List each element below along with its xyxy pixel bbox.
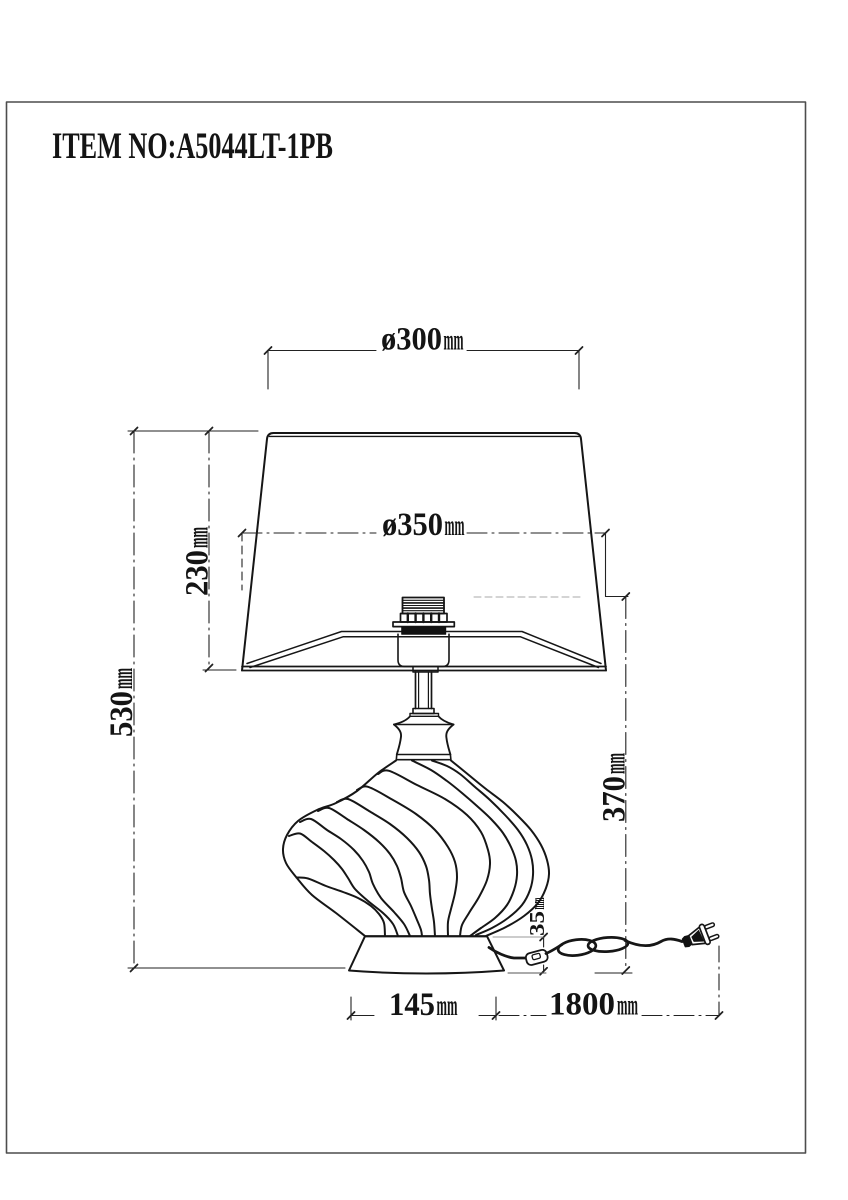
svg-text:530: 530: [104, 691, 140, 737]
svg-text:370: 370: [597, 776, 633, 822]
svg-text:mm: mm: [106, 668, 139, 689]
svg-text:ITEM NO:A5044LT-1PB: ITEM NO:A5044LT-1PB: [52, 126, 333, 167]
svg-text:230: 230: [180, 550, 216, 596]
svg-text:mm: mm: [617, 989, 638, 1022]
svg-text:ø350: ø350: [382, 507, 443, 543]
svg-text:mm: mm: [528, 897, 549, 909]
svg-text:mm: mm: [444, 324, 464, 357]
svg-text:35: 35: [525, 911, 549, 936]
svg-text:ø300: ø300: [381, 322, 442, 358]
svg-text:mm: mm: [599, 753, 632, 774]
svg-text:1800: 1800: [549, 987, 615, 1023]
svg-text:145: 145: [389, 987, 435, 1023]
svg-text:mm: mm: [182, 527, 215, 548]
svg-text:mm: mm: [445, 509, 465, 542]
svg-text:mm: mm: [437, 989, 458, 1022]
